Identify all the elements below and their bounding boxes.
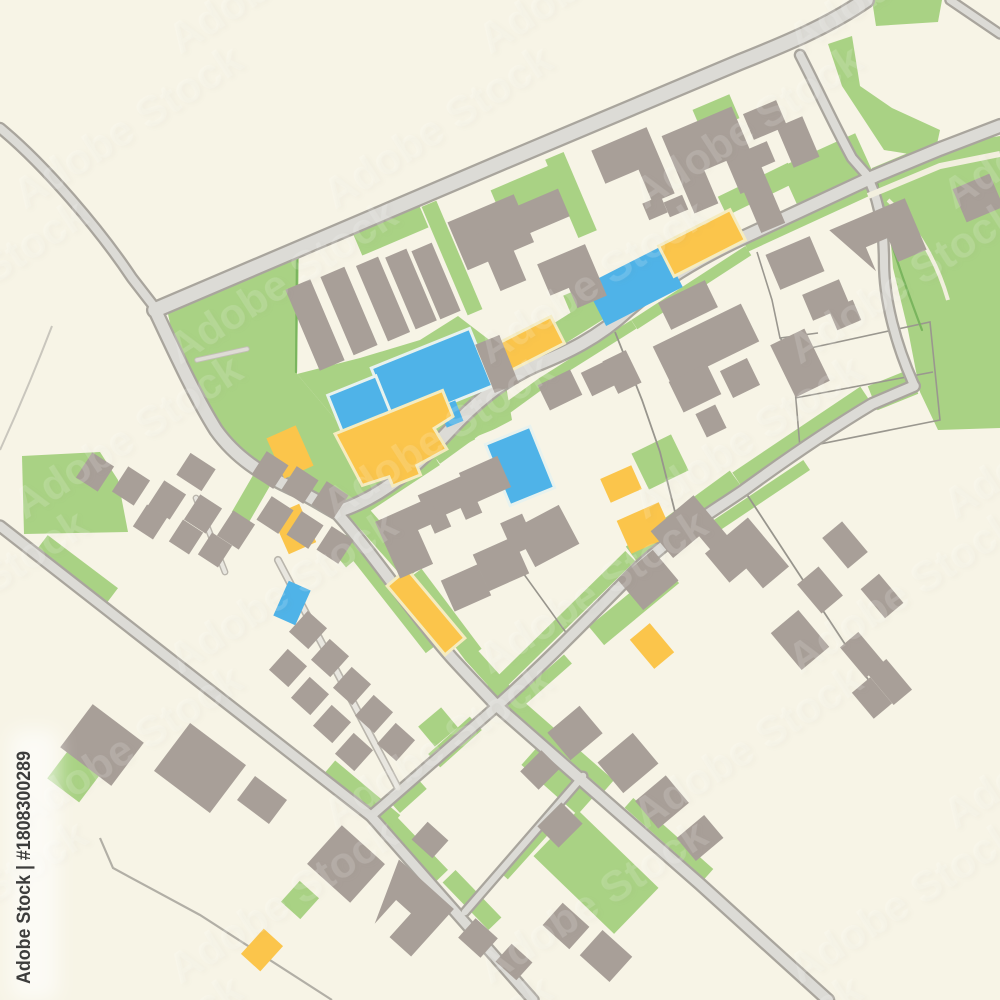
- svg-text:Adobe Stock | #1808300289: Adobe Stock | #1808300289: [13, 751, 35, 984]
